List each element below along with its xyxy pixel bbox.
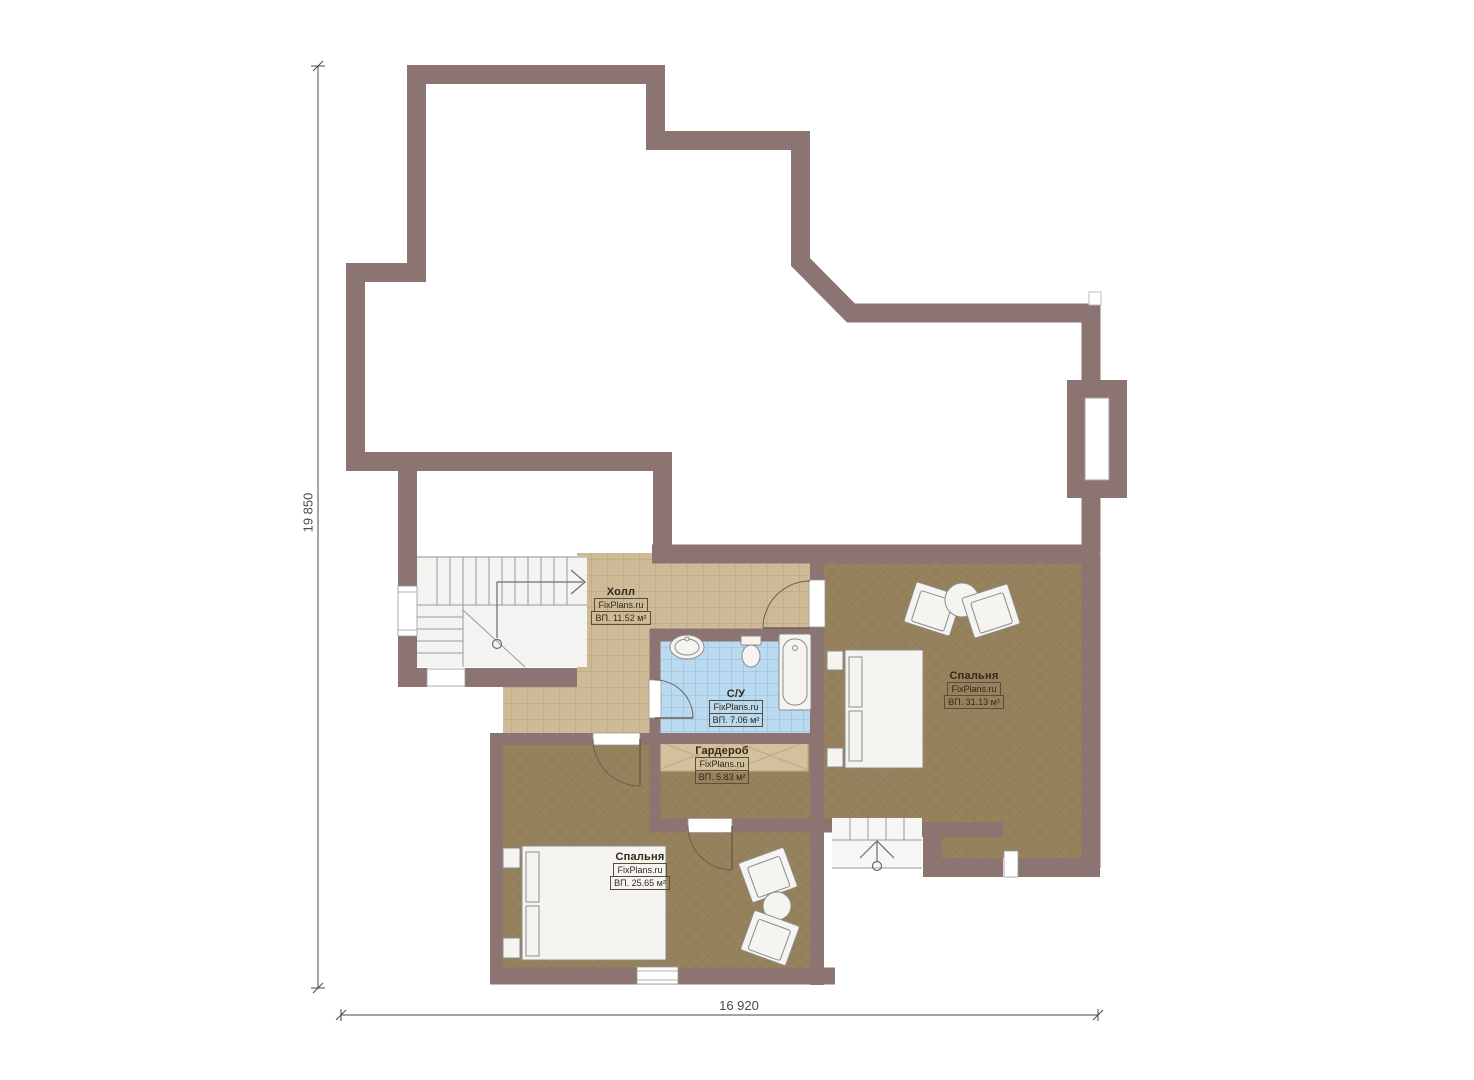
door-opening-under-stairs (427, 669, 465, 686)
pillow (526, 852, 539, 902)
sink (670, 635, 704, 659)
door-opening-wardrobe (688, 819, 732, 833)
dimension-label-left: 19 850 (301, 473, 316, 553)
door-threshold-bottom-right (1004, 851, 1018, 877)
toilet (741, 636, 761, 667)
nightstand (503, 938, 520, 958)
floor-plan-page: Холл FixPlans.ru ВП. 11.52 м² С/У FixPla… (0, 0, 1474, 1080)
window-stairwell (398, 586, 417, 636)
window-bedroom-left (637, 967, 678, 984)
bed-left (503, 846, 666, 960)
bathtub (779, 634, 811, 710)
wardrobe-rail-symbol (658, 740, 808, 771)
wall-outline-upper (356, 75, 1092, 555)
floor-plan-drawing (0, 0, 1474, 1080)
dimension-label-bottom: 16 920 (699, 998, 779, 1013)
pillow (526, 906, 539, 956)
pillow (849, 657, 862, 707)
staircase-down (824, 818, 922, 871)
door-opening-hall-bedroom-left (593, 733, 640, 745)
nightstand (827, 651, 843, 670)
staircase-up (417, 556, 587, 667)
door-opening-bathroom (649, 680, 661, 718)
nightstand (503, 848, 520, 868)
nightstand (827, 748, 843, 767)
pillow (849, 711, 862, 761)
wall-notch (1089, 292, 1101, 305)
door-opening-hall-bedroom-right (809, 580, 825, 627)
